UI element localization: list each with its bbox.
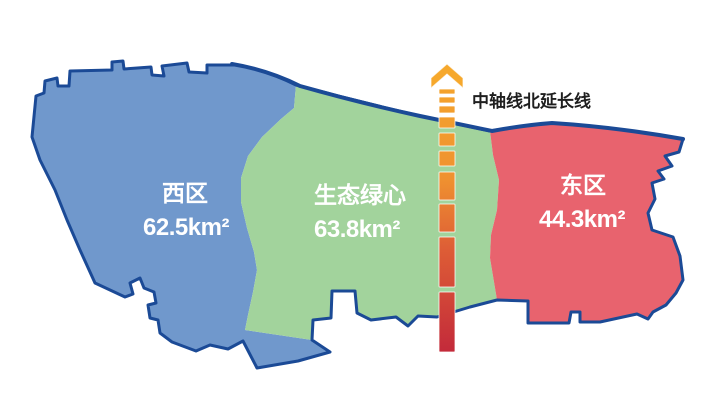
axis-dash: [439, 151, 455, 166]
green-heart-name: 生态绿心: [314, 182, 406, 208]
axis-dash: [439, 117, 455, 128]
axis-dash: [439, 89, 455, 94]
axis-dash: [439, 106, 455, 113]
east-district-name: 东区: [560, 172, 606, 198]
west-district-area: 62.5km²: [143, 214, 229, 241]
east-district-area: 44.3km²: [539, 206, 625, 233]
axis-dashed-line: [439, 89, 455, 352]
axis-dash: [439, 133, 455, 146]
axis-dash: [439, 204, 455, 232]
green-heart-area: 63.8km²: [314, 216, 400, 243]
axis-dash: [439, 237, 455, 287]
axis-label: 中轴线北延长线: [472, 91, 591, 111]
axis-dash: [439, 97, 455, 103]
west-district-name: 西区: [162, 180, 208, 206]
axis-dash: [439, 172, 455, 200]
districts-map: 中轴线北延长线 西区 62.5km² 生态绿心 63.8km² 东区 44.3k…: [0, 0, 718, 407]
axis-arrow-icon: [431, 64, 463, 88]
map-canvas: 中轴线北延长线 西区 62.5km² 生态绿心 63.8km² 东区 44.3k…: [0, 0, 718, 407]
axis-dash: [439, 292, 455, 352]
